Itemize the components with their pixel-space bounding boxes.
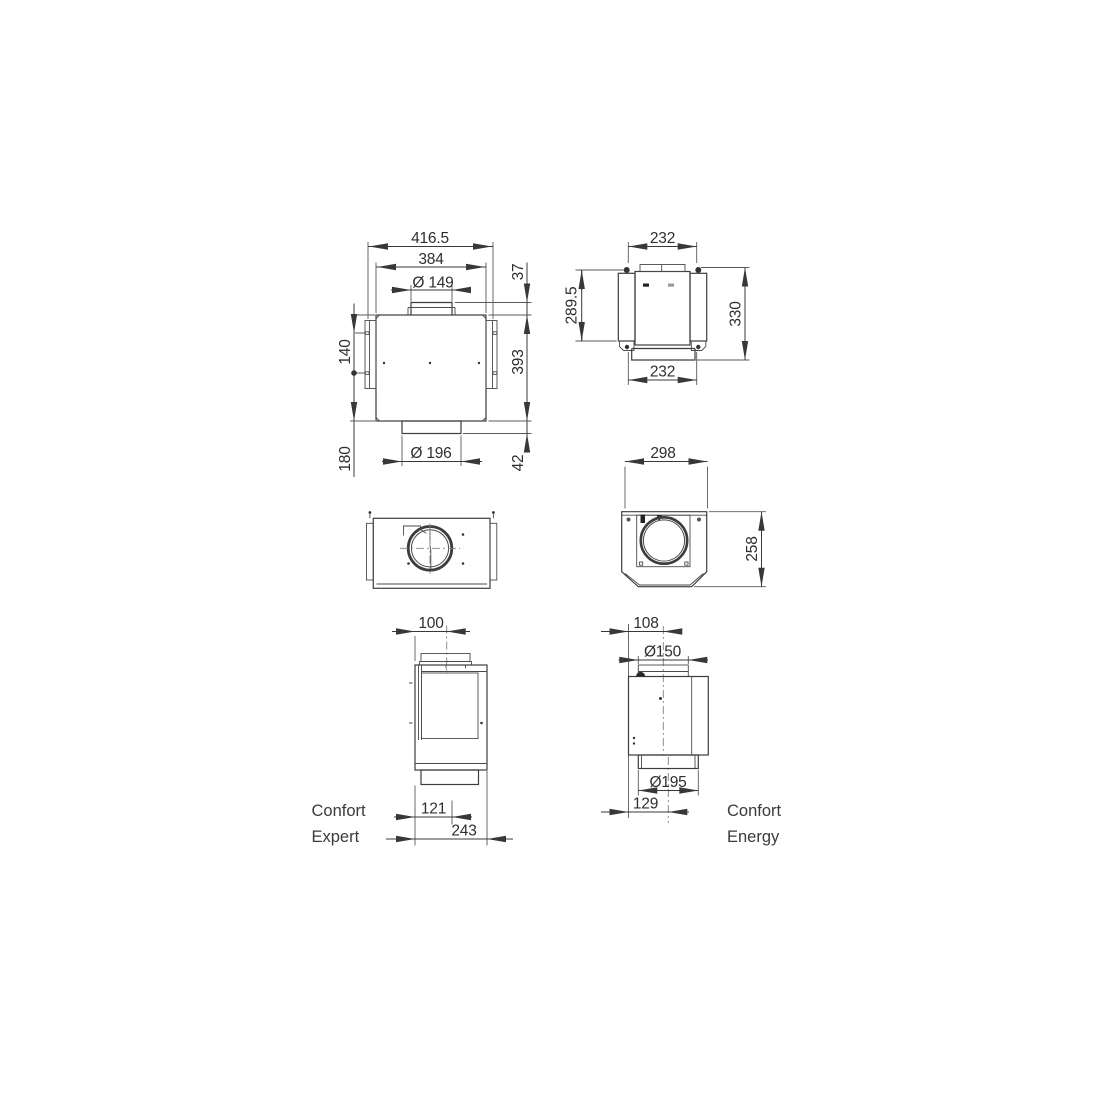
expert-label-line2: Expert [312, 828, 360, 846]
dim-body-height: 393 [510, 349, 527, 374]
top-view [367, 511, 497, 588]
side-view: 232 289.5 330 232 [564, 230, 750, 385]
dim-energy-duct-axis: 108 [633, 615, 658, 632]
dim-energy-collar-axis: 129 [633, 796, 658, 813]
drawing-page: 416.5 384 Ø 149 37 393 42 140 180 Ø 19 [0, 0, 1100, 1100]
dim-top-duct-diameter: Ø 149 [412, 275, 453, 292]
dim-collar-height: 42 [510, 455, 527, 472]
energy-label-line2: Energy [727, 828, 780, 846]
dim-energy-collar-diameter: Ø195 [649, 774, 686, 791]
rear-duct-ring [641, 517, 687, 563]
dim-bottom-collar-diameter: Ø 196 [410, 445, 451, 462]
dim-flange-height: 289.5 [564, 287, 581, 325]
rear-view: 298 258 [622, 445, 766, 587]
dim-energy-duct-diameter: Ø150 [644, 644, 682, 661]
dim-rear-width: 298 [650, 445, 675, 462]
dim-expert-front-panel: 121 [421, 801, 446, 818]
dim-overall-height: 330 [728, 301, 745, 327]
dim-rear-height: 258 [744, 536, 761, 561]
dim-expert-duct-axis: 100 [418, 615, 444, 632]
dim-side-top-width: 232 [650, 230, 675, 247]
hinge-dome [636, 672, 645, 677]
front-view: 416.5 384 Ø 149 37 393 42 140 180 Ø 19 [337, 230, 532, 477]
dim-duct-protrusion: 37 [510, 264, 527, 281]
confort-energy-view: 108 Ø150 Ø195 129 Confort Energy [601, 615, 782, 846]
technical-drawing: 416.5 384 Ø 149 37 393 42 140 180 Ø 19 [0, 0, 1100, 1100]
dim-expert-depth: 243 [451, 823, 476, 840]
dim-overall-width: 416.5 [411, 230, 449, 247]
dim-hole-to-bottom: 180 [337, 446, 354, 472]
confort-expert-view: 100 121 243 Confort Expert [312, 615, 514, 846]
dim-side-bottom-width: 232 [650, 364, 675, 381]
dim-body-width: 384 [418, 251, 444, 268]
expert-label-line1: Confort [312, 802, 367, 820]
dim-bracket-hole-spacing: 140 [337, 339, 354, 365]
energy-label-line1: Confort [727, 802, 782, 820]
